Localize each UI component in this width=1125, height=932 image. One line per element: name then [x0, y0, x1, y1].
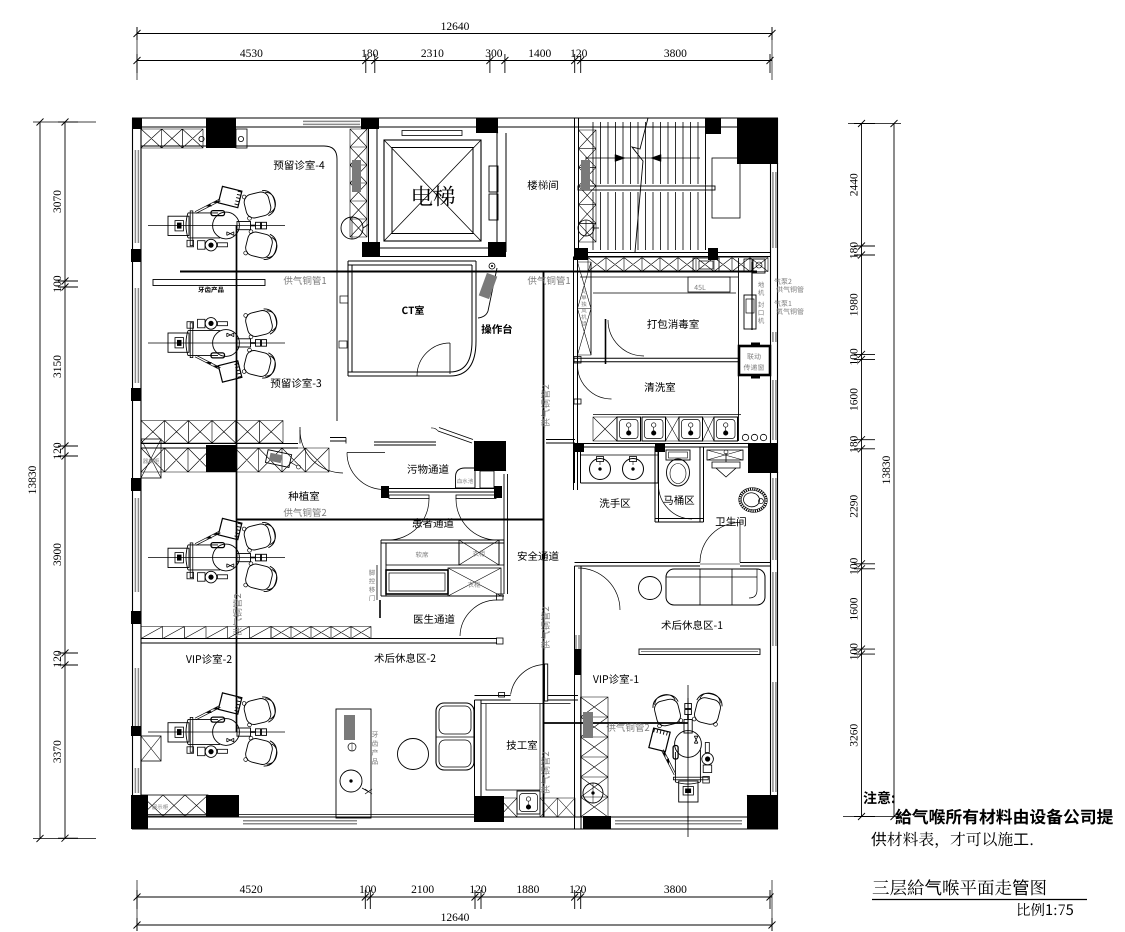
svg-text:120: 120	[569, 884, 587, 896]
svg-text:120: 120	[469, 884, 487, 896]
svg-text:12640: 12640	[441, 21, 470, 33]
svg-text:12640: 12640	[441, 912, 470, 924]
svg-text:1980: 1980	[849, 293, 861, 316]
svg-text:300: 300	[485, 48, 503, 60]
svg-text:3800: 3800	[664, 884, 687, 896]
svg-text:3800: 3800	[664, 48, 687, 60]
svg-text:2290: 2290	[849, 495, 861, 518]
svg-text:3070: 3070	[52, 190, 64, 213]
svg-text:13830: 13830	[27, 465, 39, 494]
svg-text:1600: 1600	[849, 388, 861, 411]
svg-text:120: 120	[52, 650, 64, 668]
svg-text:120: 120	[570, 48, 588, 60]
svg-text:100: 100	[849, 643, 861, 661]
svg-text:3150: 3150	[52, 355, 64, 378]
svg-text:4530: 4530	[240, 48, 263, 60]
svg-text:120: 120	[52, 442, 64, 460]
svg-text:180: 180	[849, 242, 861, 260]
svg-text:3900: 3900	[52, 543, 64, 566]
svg-text:180: 180	[849, 435, 861, 453]
svg-text:180: 180	[361, 48, 379, 60]
svg-text:3260: 3260	[849, 724, 861, 747]
svg-text:1880: 1880	[516, 884, 539, 896]
svg-text:1400: 1400	[528, 48, 551, 60]
svg-text:3370: 3370	[52, 740, 64, 763]
svg-text:4520: 4520	[240, 884, 263, 896]
svg-text:1600: 1600	[849, 597, 861, 620]
svg-text:2310: 2310	[421, 48, 444, 60]
svg-text:2100: 2100	[411, 884, 434, 896]
svg-text:13830: 13830	[881, 455, 893, 484]
svg-text:100: 100	[849, 348, 861, 366]
svg-text:100: 100	[359, 884, 377, 896]
svg-text:100: 100	[849, 557, 861, 575]
svg-text:2440: 2440	[849, 173, 861, 196]
svg-text:100: 100	[52, 275, 64, 293]
